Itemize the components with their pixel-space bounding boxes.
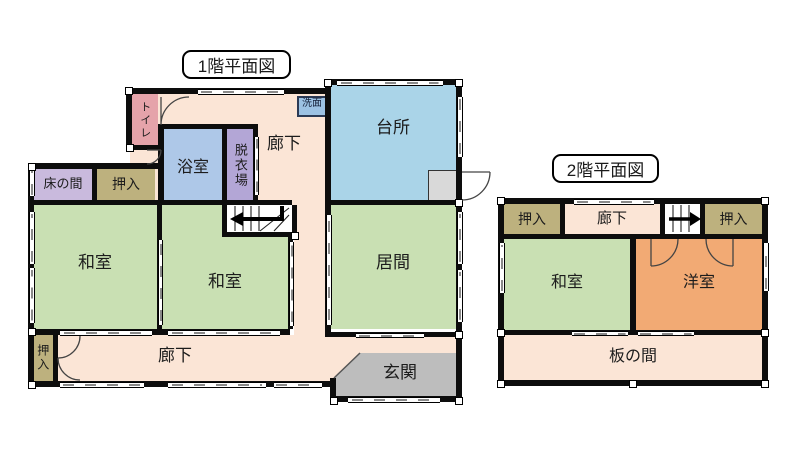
bath-label: 浴室 (164, 158, 222, 178)
living-label: 居間 (358, 253, 428, 273)
closet-top-label: 押入 (98, 175, 154, 193)
doors-and-stairs-overlay (0, 0, 789, 451)
floor1-title: 1階平面図 (182, 50, 291, 79)
dressing-label: 脱衣場 (228, 133, 252, 197)
corridor-bottom-label: 廊下 (140, 346, 210, 366)
tokonoma-label: 床の間 (35, 175, 91, 193)
stairs-up-right-arrow-icon (669, 212, 701, 226)
corridor-2f-label: 廊下 (582, 210, 642, 228)
stairs-up-bent-left-arrow-icon (230, 206, 282, 226)
kitchen-label: 台所 (358, 118, 428, 138)
toilet-label: トイレ (133, 97, 155, 143)
corridor-top-label: 廊下 (250, 134, 318, 154)
entrance-diagonal-line (334, 353, 360, 378)
washitsu-2f-label: 和室 (532, 273, 602, 293)
washitsu-mid-label: 和室 (190, 272, 260, 292)
closet-2f-left-label: 押入 (504, 210, 560, 228)
itanoma-label: 板の間 (598, 347, 668, 367)
floor2-title: 2階平面図 (552, 154, 659, 183)
washstand-label: 洗面 (297, 97, 327, 112)
youshitsu-2f-label: 洋室 (664, 273, 734, 293)
floor-plan-canvas: 1階平面図 2階平面図 トイレ 浴室 脱衣場 洗面 廊下 台所 床の間 押入 和… (0, 0, 789, 451)
closet-bottom-label: 押入 (33, 338, 52, 378)
closet-2f-right-label: 押入 (705, 210, 762, 228)
door-arc (58, 97, 733, 380)
washitsu-left-label: 和室 (60, 253, 130, 273)
entrance-label: 玄関 (365, 363, 435, 383)
